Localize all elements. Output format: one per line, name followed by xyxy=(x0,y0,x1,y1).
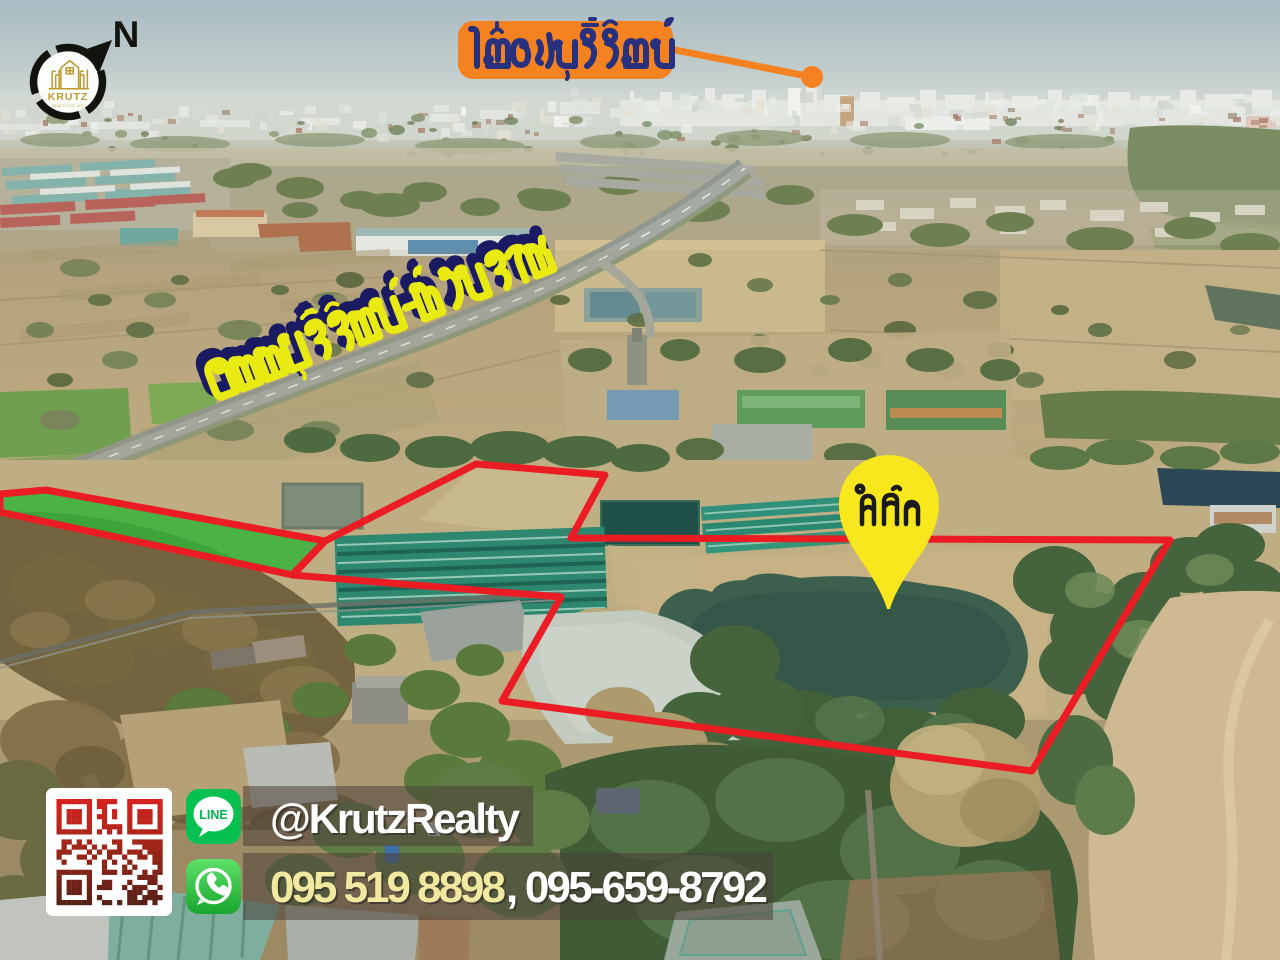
svg-text:N: N xyxy=(113,14,140,55)
svg-text:095 519 8898: 095 519 8898 xyxy=(270,863,506,912)
svg-text:, 095-659-8792: , 095-659-8792 xyxy=(506,863,768,912)
svg-text:LINE: LINE xyxy=(199,808,227,822)
svg-text:REALTY CO.,LTD: REALTY CO.,LTD xyxy=(52,103,84,108)
svg-text:@KrutzRealty: @KrutzRealty xyxy=(270,795,521,842)
svg-text:KRUTZ: KRUTZ xyxy=(48,91,89,103)
